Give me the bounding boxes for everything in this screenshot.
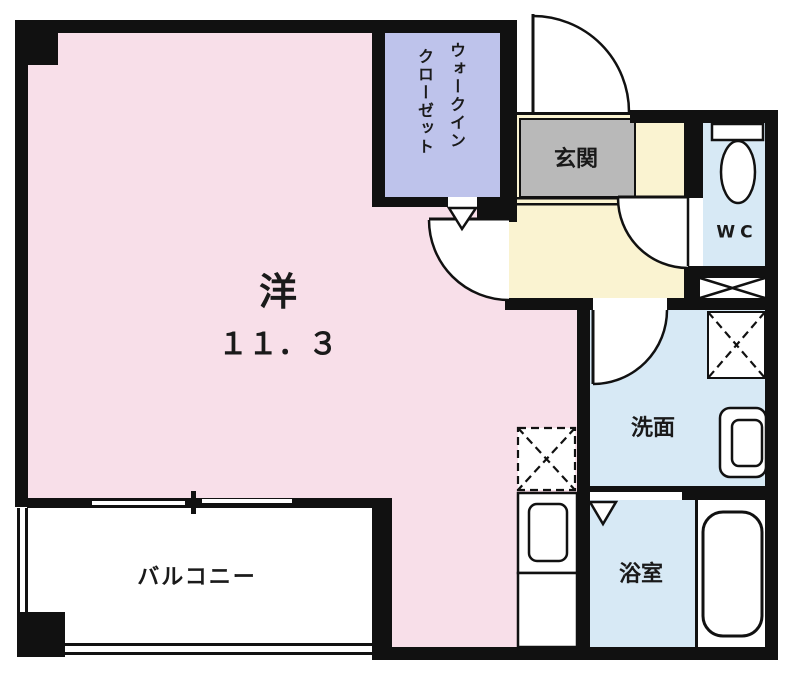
balcony-rail-left-outer (17, 508, 20, 612)
entrance-threshold-line (504, 112, 630, 115)
balcony-rail-bottom-outer (65, 652, 372, 655)
pillar-balcony-corner (17, 612, 65, 657)
wall-wic-bottom-left (372, 197, 448, 207)
sliding-window-pane-left (92, 501, 185, 505)
washroom-label: 洗面 (631, 418, 675, 440)
washbasin-icon (720, 408, 766, 477)
kitchen-cabinet (518, 573, 577, 647)
wall-right (765, 110, 778, 660)
wall-wic-right (500, 33, 517, 207)
floor-plan-drawing (0, 0, 800, 674)
wall-bottom (375, 647, 778, 660)
wall-balcony-right (372, 498, 392, 660)
walk-in-closet-area (385, 33, 500, 197)
wall-hall-wc-divider (684, 122, 703, 198)
wall-top (15, 20, 504, 33)
bathtub-icon (703, 512, 762, 636)
wall-hall-bottom-right (667, 298, 778, 310)
wic-label-line2: クローゼット (416, 48, 432, 156)
wall-top-right (630, 110, 778, 123)
entrance-label: 玄関 (554, 149, 598, 171)
bathroom-doorway-gap (590, 492, 682, 500)
wall-wic-left (372, 33, 385, 207)
floor-plan: 洋 １１．３ ウォークイン クローゼット 玄関 WC 洗面 浴室 バルコニー (0, 0, 800, 674)
wic-doorway-gap (448, 197, 477, 207)
sliding-window-pane-right (202, 499, 292, 503)
bathtub-partition-line (695, 500, 698, 647)
balcony-label: バルコニー (137, 567, 257, 589)
wall-hall-bottom-left (505, 298, 593, 310)
main-room-label: 洋 (259, 273, 297, 311)
washing-machine-space-symbol (708, 312, 765, 378)
sliding-window-symbol (27, 498, 375, 508)
balcony-rail-left-inner (25, 508, 28, 612)
bathroom-label: 浴室 (619, 564, 663, 586)
wic-label-line1: ウォークイン (448, 42, 464, 150)
pipe-space-symbol (700, 278, 765, 298)
kitchen-sink-icon (518, 493, 577, 647)
entrance-door-arc (533, 14, 629, 112)
wall-main-wet-divider (577, 310, 590, 647)
refrigerator-space-symbol (518, 428, 575, 490)
balcony-rail-bottom-inner (65, 643, 372, 646)
wall-pipe-space-left (684, 266, 700, 310)
main-room-size: １１．３ (218, 330, 338, 360)
wall-left (15, 20, 28, 507)
sliding-window-center-tick (191, 491, 196, 514)
toilet-label: WC (716, 225, 757, 242)
